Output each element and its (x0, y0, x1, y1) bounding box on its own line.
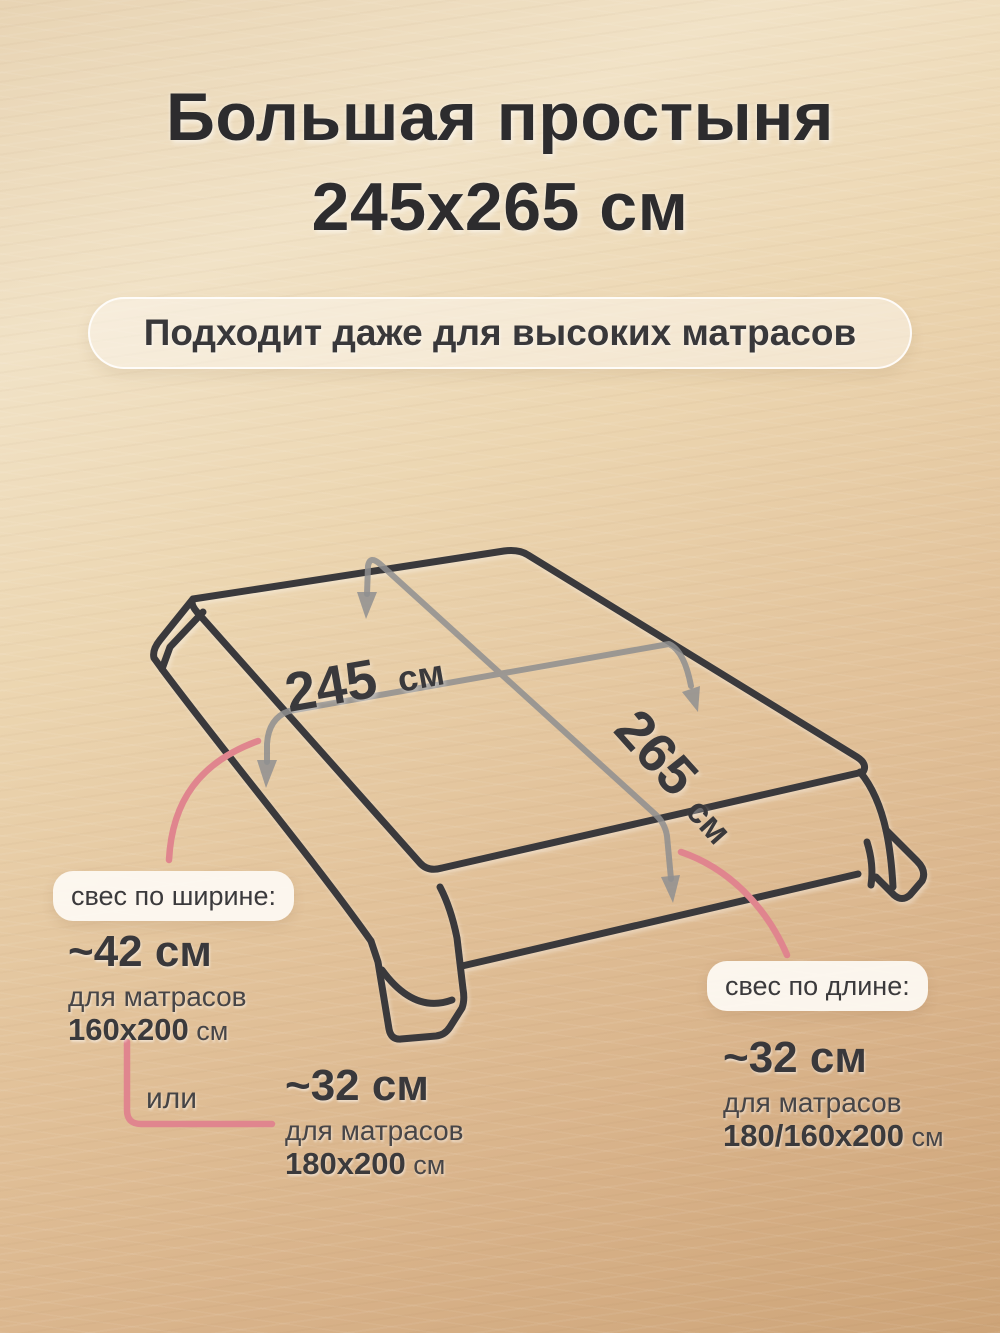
arrowhead-width-left (257, 760, 277, 788)
alt-overhang-note: ~32 см для матрасов 180х200 см (285, 1060, 464, 1181)
width-overhang-badge: свес по ширине: (53, 871, 294, 921)
alt-overhang-size: 180х200 см (285, 1148, 464, 1181)
length-measure-line (367, 560, 671, 879)
sheet-right-edge (860, 772, 893, 887)
width-overhang-size: 160х200 см (68, 1014, 247, 1047)
width-dimension-value: 245 (280, 647, 381, 724)
length-overhang-note: ~32 см для матрасов 180/160х200 см (723, 1032, 944, 1153)
length-overhang-desc: для матрасов (723, 1086, 944, 1119)
length-overhang-connector (681, 852, 787, 955)
page-title-line2: 245х265 см (0, 162, 1000, 252)
page-title-line1: Большая простыня (0, 72, 1000, 162)
width-overhang-connector (169, 741, 258, 860)
alt-overhang-desc: для матрасов (285, 1114, 464, 1147)
alt-overhang-value: ~32 см (285, 1060, 464, 1112)
sheet-right-drape (876, 830, 924, 899)
sheet-right-drape-crease (867, 842, 872, 885)
width-overhang-value: ~42 см (68, 926, 247, 978)
width-measure-line (267, 644, 691, 762)
subtitle-badge: Подходит даже для высоких матрасов (88, 297, 912, 369)
sheet-corner-flap (154, 599, 193, 669)
infographic-page: Большая простыня 245х265 см Подходит даж… (0, 0, 1000, 1333)
measure-arrowheads (257, 592, 700, 903)
measure-lines (267, 560, 691, 879)
dimension-labels: 245 см 265 см (280, 647, 739, 852)
length-dimension-value: 265 (603, 698, 710, 808)
sheet-bottom-drape (371, 887, 464, 1039)
arrowhead-width-right (682, 686, 700, 712)
width-overhang-desc: для матрасов (68, 980, 247, 1013)
length-overhang-badge: свес по длине: (707, 961, 928, 1011)
sheet-top-face (192, 551, 864, 870)
width-overhang-label: свес по ширине: (71, 881, 276, 911)
sheet-bottom-drape-crease (382, 970, 452, 1003)
or-label: или (146, 1082, 197, 1116)
width-dimension-unit: см (394, 651, 447, 699)
arrowhead-length-top (357, 592, 377, 619)
sheet-right-hem (462, 874, 858, 966)
length-overhang-size: 180/160х200 см (723, 1120, 944, 1153)
arrowhead-length-bottom (661, 875, 680, 903)
length-dimension-unit: см (678, 790, 740, 852)
width-overhang-note: ~42 см для матрасов 160х200 см (68, 926, 247, 1047)
subtitle-text: Подходит даже для высоких матрасов (144, 312, 856, 354)
sheet-corner-flap-inner (162, 612, 203, 669)
length-overhang-label: свес по длине: (725, 971, 910, 1001)
page-title: Большая простыня 245х265 см (0, 72, 1000, 252)
length-overhang-value: ~32 см (723, 1032, 944, 1084)
